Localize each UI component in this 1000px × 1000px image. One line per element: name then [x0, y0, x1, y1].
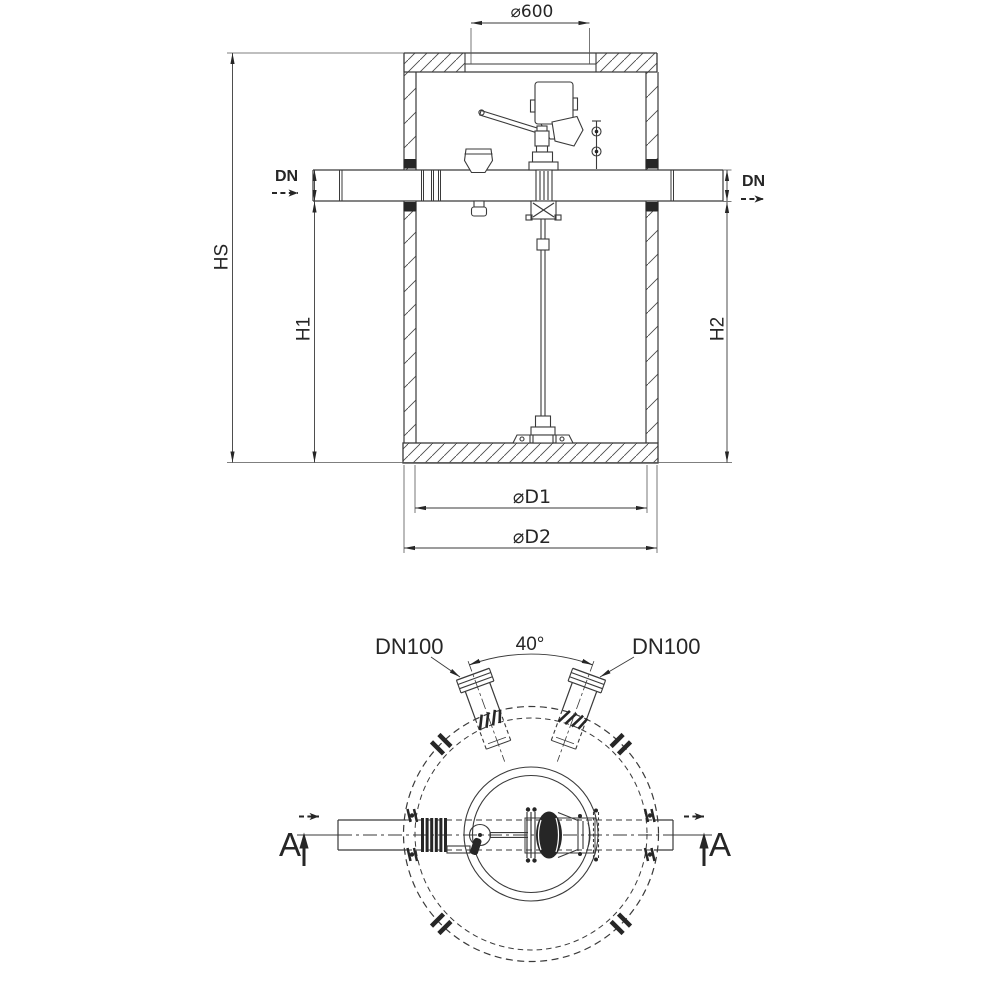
- dim-600-label: ⌀600: [511, 2, 554, 22]
- dn-outlet-label: DN: [742, 173, 765, 190]
- gate-valve-assembly: [465, 82, 602, 443]
- inlet-nozzle-left: [452, 655, 521, 768]
- dim-h1-label: H1: [294, 317, 315, 341]
- base-slab: [403, 443, 658, 463]
- gate-wedge: [536, 170, 552, 201]
- section-cut-label-left: A: [279, 826, 301, 863]
- main-pipe-section: [313, 170, 723, 201]
- nozzle-label-left: DN100: [375, 634, 460, 677]
- section-cut-marker-right: A: [699, 826, 731, 866]
- plan-view: 40° DN100 DN100 A A: [279, 634, 731, 962]
- angle-label: 40°: [516, 634, 545, 655]
- gate-valve-plan: [525, 807, 599, 862]
- dn-outlet-annotation: DN: [723, 170, 765, 202]
- drain-fitting: [472, 201, 487, 216]
- main-pipe-plan: [297, 820, 712, 850]
- nozzle-label-right: DN100: [600, 634, 700, 677]
- dim-d1-label: ⌀D1: [513, 486, 551, 508]
- inlet-funnel: [465, 149, 493, 173]
- hand-lever: [479, 110, 542, 134]
- section-cut-marker-left: A: [279, 826, 309, 866]
- wall-guide: [592, 121, 601, 169]
- dim-top-opening: ⌀600: [471, 2, 590, 64]
- technical-drawing-page: ⌀600 DN DN HS H1 H2: [0, 0, 1000, 1000]
- valve-yoke: [526, 201, 561, 220]
- dim-nozzle-angle: 40°: [469, 634, 592, 665]
- dim-d2-label: ⌀D2: [513, 526, 551, 548]
- dim-h2-label: H2: [708, 317, 729, 341]
- dim-hs-label: HS: [212, 244, 233, 270]
- cover-slab: [404, 53, 657, 72]
- extension-spindle: [513, 219, 573, 443]
- dn-inlet-annotation: DN: [272, 168, 315, 201]
- handwheel-plan: [447, 825, 528, 856]
- dn-inlet-label: DN: [275, 168, 298, 185]
- section-view: ⌀600 DN DN HS H1 H2: [212, 2, 766, 553]
- pump-station-drawing: ⌀600 DN DN HS H1 H2: [0, 0, 1000, 1000]
- pipe-top-flange: [529, 162, 558, 170]
- dim-diameters: ⌀D1 ⌀D2: [404, 465, 657, 553]
- svg-text:DN100: DN100: [375, 634, 443, 659]
- inlet-nozzle-right: [541, 655, 610, 768]
- svg-text:DN100: DN100: [632, 634, 700, 659]
- section-cut-label-right: A: [709, 826, 731, 863]
- actuator-bracket: [552, 117, 583, 147]
- actuator-box: [535, 82, 573, 124]
